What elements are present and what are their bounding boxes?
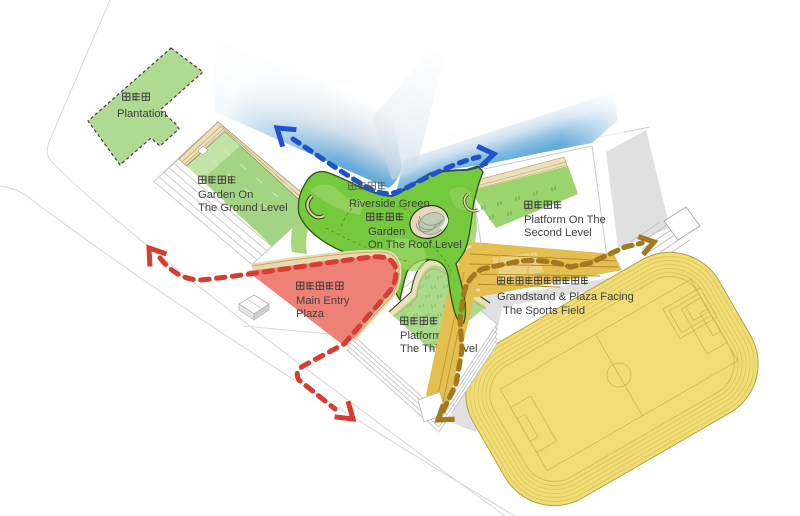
svg-text:Riverside Green: Riverside Green bbox=[349, 198, 430, 210]
svg-text:Main Entry: Main Entry bbox=[296, 295, 350, 307]
svg-text:Platform On The: Platform On The bbox=[524, 214, 606, 226]
svg-text:Second Level: Second Level bbox=[524, 227, 592, 239]
svg-text:Plantation: Plantation bbox=[117, 108, 167, 120]
svg-text:The Sports Field: The Sports Field bbox=[503, 305, 585, 317]
svg-text:The Ground Level: The Ground Level bbox=[198, 202, 288, 214]
svg-text:Garden: Garden bbox=[368, 226, 405, 238]
svg-text:On The Roof Level: On The Roof Level bbox=[368, 239, 462, 251]
svg-text:Garden On: Garden On bbox=[198, 189, 253, 201]
svg-text:Grandstand & Plaza Facing: Grandstand & Plaza Facing bbox=[497, 291, 634, 303]
svg-text:Plaza: Plaza bbox=[296, 308, 325, 320]
